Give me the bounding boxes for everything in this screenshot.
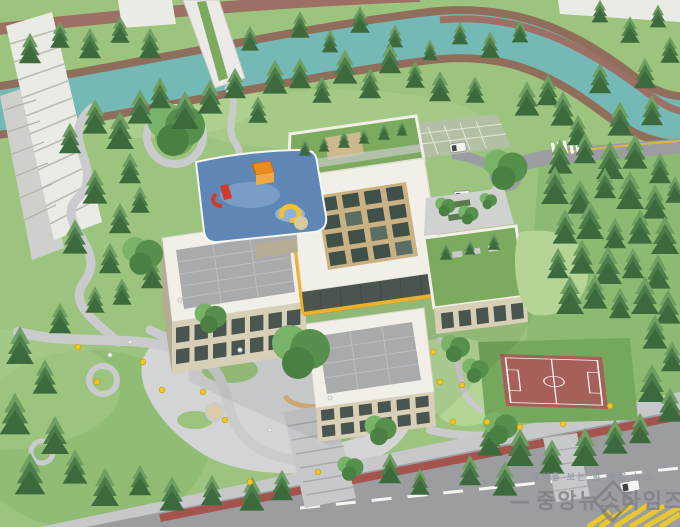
skylight-grid [316, 182, 418, 270]
playground [196, 150, 326, 242]
aerial-rendering: 개성을 보는 발 빠른 뉴스 —중앙뉴스타임즈— [0, 0, 680, 527]
parked-van [449, 142, 466, 153]
sand-circle [294, 216, 308, 230]
site-plan-scene [0, 0, 680, 527]
